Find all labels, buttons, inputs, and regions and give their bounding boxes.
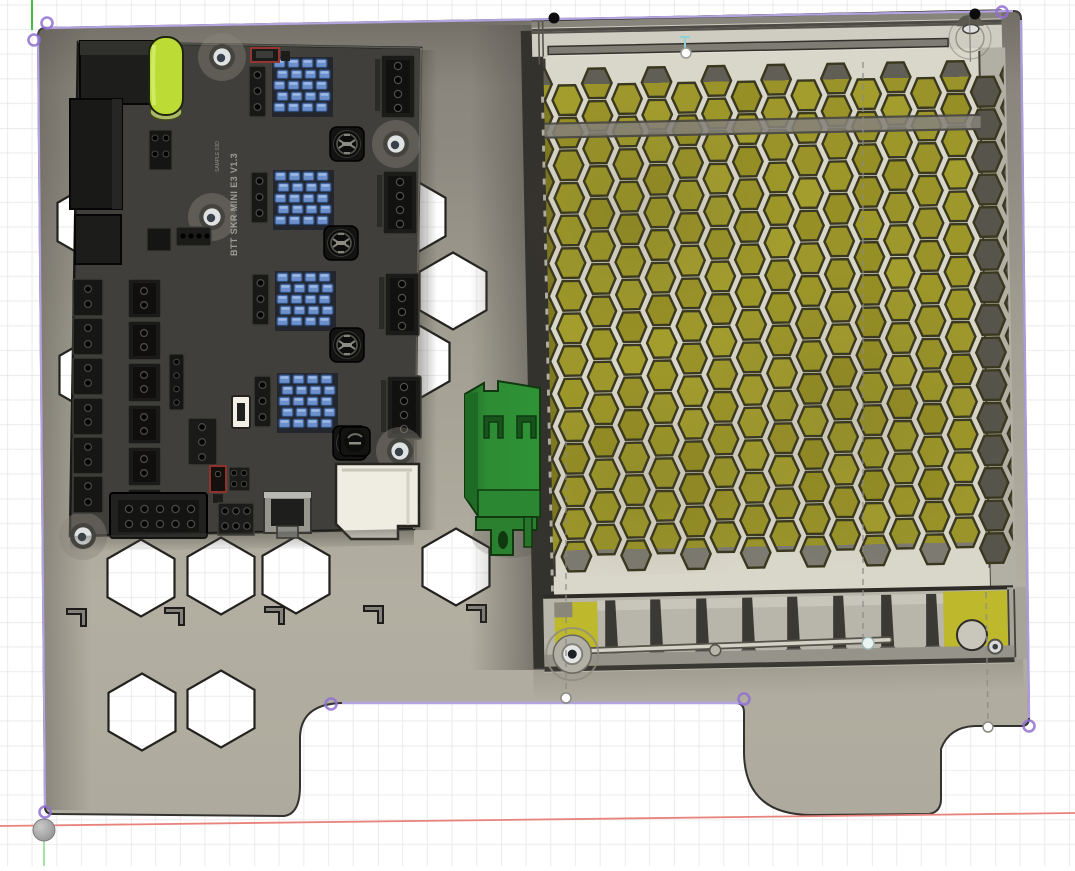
svg-text:BTT SKR MINI E3 V1.3: BTT SKR MINI E3 V1.3 (229, 153, 239, 256)
svg-text:SAMPLE 03D: SAMPLE 03D (215, 141, 221, 172)
